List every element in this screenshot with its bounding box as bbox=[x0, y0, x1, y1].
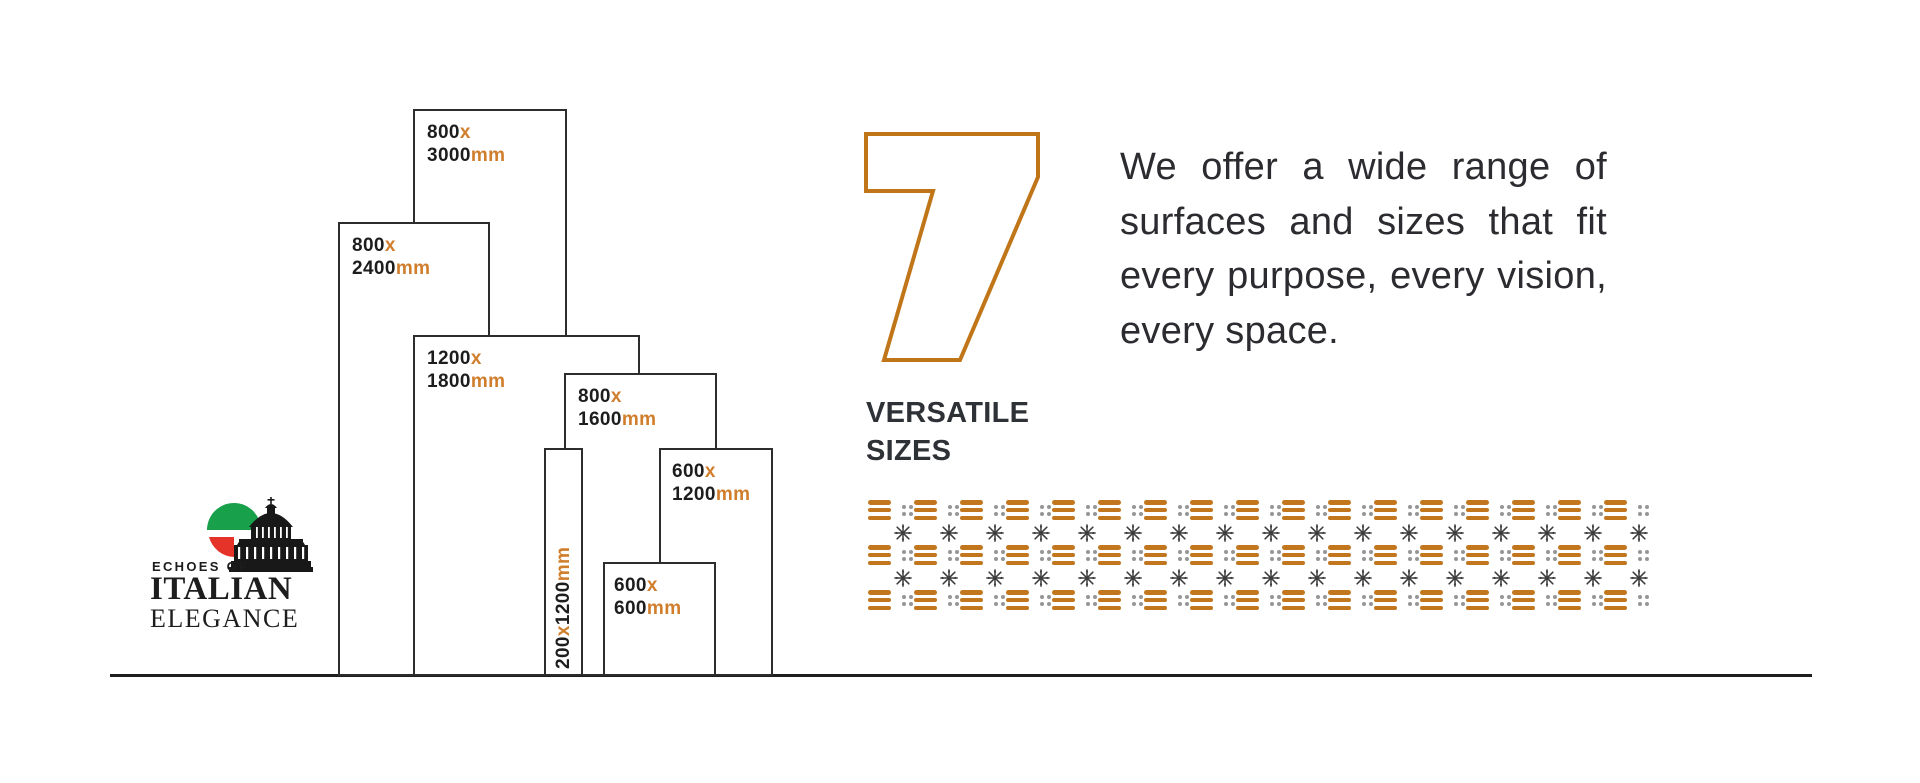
snowflake-motif-icon bbox=[1236, 520, 1282, 545]
quad-dot-motif-icon bbox=[902, 505, 913, 516]
triple-bar-motif-icon bbox=[1374, 500, 1397, 520]
pattern-cell bbox=[1604, 545, 1650, 565]
size-width: 200 bbox=[553, 636, 574, 669]
pattern-cell bbox=[1604, 590, 1650, 610]
quad-dot-motif-icon bbox=[902, 595, 913, 606]
triple-bar-motif-icon bbox=[1512, 545, 1535, 565]
triple-bar-motif-icon bbox=[1512, 590, 1535, 610]
pattern-band bbox=[868, 500, 1658, 610]
quad-dot-motif-icon bbox=[1592, 505, 1603, 516]
size-width: 600 bbox=[672, 461, 705, 482]
copy-line: surfaces and sizes that fit bbox=[1120, 195, 1607, 250]
pattern-row bbox=[868, 545, 1658, 565]
quad-dot-motif-icon bbox=[1316, 550, 1327, 561]
size-width: 800 bbox=[578, 386, 611, 407]
section-title: VERSATILE SIZES bbox=[866, 394, 1029, 470]
logo-italian: ITALIAN bbox=[150, 571, 292, 608]
snowflake-motif-icon bbox=[1466, 520, 1512, 545]
snowflake-motif-icon bbox=[1328, 565, 1374, 590]
section-title-line1: VERSATILE bbox=[866, 394, 1029, 432]
triple-bar-motif-icon bbox=[1604, 545, 1627, 565]
pattern-cell bbox=[1558, 545, 1604, 565]
snowflake-motif-icon bbox=[1420, 520, 1466, 545]
quad-dot-motif-icon bbox=[1316, 595, 1327, 606]
logo-elegance: ELEGANCE bbox=[150, 604, 299, 634]
snowflake-motif-icon bbox=[914, 565, 960, 590]
pattern-cell bbox=[960, 500, 1006, 520]
quad-dot-motif-icon bbox=[1408, 550, 1419, 561]
triple-bar-motif-icon bbox=[1190, 545, 1213, 565]
quad-dot-motif-icon bbox=[994, 595, 1005, 606]
triple-bar-motif-icon bbox=[1558, 545, 1581, 565]
tile-size-label: 800x 2400mm bbox=[340, 224, 488, 280]
pattern-cell bbox=[1558, 500, 1604, 520]
size-sep: x bbox=[385, 235, 396, 256]
tile-size-label: 600x 600mm bbox=[605, 564, 714, 620]
tile-size-label-vertical: 200x1200mm bbox=[553, 453, 575, 671]
pattern-cell bbox=[1190, 500, 1236, 520]
triple-bar-motif-icon bbox=[1466, 500, 1489, 520]
pattern-cell bbox=[1052, 500, 1098, 520]
quad-dot-motif-icon bbox=[1592, 550, 1603, 561]
size-sep: x bbox=[705, 461, 716, 482]
snowflake-motif-icon bbox=[1236, 565, 1282, 590]
quad-dot-motif-icon bbox=[1040, 550, 1051, 561]
tile-size-label: 800x 3000mm bbox=[415, 111, 565, 167]
size-height: 600 bbox=[614, 598, 647, 619]
size-height: 1200 bbox=[553, 581, 574, 625]
triple-bar-motif-icon bbox=[1374, 545, 1397, 565]
triple-bar-motif-icon bbox=[1374, 590, 1397, 610]
triple-bar-motif-icon bbox=[1098, 545, 1121, 565]
pattern-cell bbox=[960, 545, 1006, 565]
pattern-row bbox=[868, 590, 1658, 610]
quad-dot-motif-icon bbox=[948, 505, 959, 516]
triple-bar-motif-icon bbox=[960, 545, 983, 565]
pattern-cell bbox=[1604, 500, 1650, 520]
triple-bar-motif-icon bbox=[868, 500, 891, 520]
quad-dot-motif-icon bbox=[1454, 505, 1465, 516]
quad-dot-motif-icon bbox=[1362, 595, 1373, 606]
pattern-cell bbox=[1098, 545, 1144, 565]
triple-bar-motif-icon bbox=[1604, 500, 1627, 520]
quad-dot-motif-icon bbox=[1178, 505, 1189, 516]
size-unit: mm bbox=[553, 547, 574, 582]
triple-bar-motif-icon bbox=[1144, 545, 1167, 565]
quad-dot-motif-icon bbox=[1178, 550, 1189, 561]
triple-bar-motif-icon bbox=[1558, 590, 1581, 610]
pattern-cell bbox=[1282, 590, 1328, 610]
size-width: 600 bbox=[614, 575, 647, 596]
size-sep: x bbox=[611, 386, 622, 407]
snowflake-motif-icon bbox=[1052, 565, 1098, 590]
snowflake-motif-icon bbox=[1144, 520, 1190, 545]
snowflake-motif-icon bbox=[1512, 565, 1558, 590]
pattern-cell bbox=[1466, 590, 1512, 610]
size-sep: x bbox=[460, 122, 471, 143]
triple-bar-motif-icon bbox=[914, 545, 937, 565]
pattern-cell bbox=[1098, 500, 1144, 520]
pattern-cell bbox=[1144, 500, 1190, 520]
pattern-cell bbox=[1052, 545, 1098, 565]
quad-dot-motif-icon bbox=[1040, 505, 1051, 516]
quad-dot-motif-icon bbox=[1546, 595, 1557, 606]
size-unit: mm bbox=[471, 371, 506, 392]
size-height: 1800 bbox=[427, 371, 471, 392]
quad-dot-motif-icon bbox=[1224, 550, 1235, 561]
triple-bar-motif-icon bbox=[1052, 590, 1075, 610]
triple-bar-motif-icon bbox=[1236, 590, 1259, 610]
quad-dot-motif-icon bbox=[1592, 595, 1603, 606]
copy-line: every purpose, every vision, bbox=[1120, 249, 1607, 304]
quad-dot-motif-icon bbox=[1086, 505, 1097, 516]
tile-size-label: 800x 1600mm bbox=[566, 375, 715, 431]
pattern-cell bbox=[914, 590, 960, 610]
pattern-cell bbox=[1558, 590, 1604, 610]
triple-bar-motif-icon bbox=[1006, 500, 1029, 520]
snowflake-motif-icon bbox=[1420, 565, 1466, 590]
quad-dot-motif-icon bbox=[1270, 505, 1281, 516]
pattern-cell bbox=[1006, 545, 1052, 565]
triple-bar-motif-icon bbox=[1190, 500, 1213, 520]
brand-logo: ECHOES OF ITALIAN ELEGANCE bbox=[148, 497, 318, 637]
size-height: 1600 bbox=[578, 409, 622, 430]
snowflake-motif-icon bbox=[1558, 520, 1604, 545]
pattern-cell bbox=[1328, 500, 1374, 520]
triple-bar-motif-icon bbox=[1420, 500, 1443, 520]
quad-dot-motif-icon bbox=[1178, 595, 1189, 606]
pattern-cell bbox=[868, 590, 914, 610]
quad-dot-motif-icon bbox=[1638, 550, 1649, 561]
triple-bar-motif-icon bbox=[1144, 590, 1167, 610]
size-sep: x bbox=[647, 575, 658, 596]
copy-line: We offer a wide range of bbox=[1120, 140, 1607, 195]
quad-dot-motif-icon bbox=[1224, 505, 1235, 516]
quad-dot-motif-icon bbox=[1040, 595, 1051, 606]
pattern-cell bbox=[1420, 590, 1466, 610]
triple-bar-motif-icon bbox=[1236, 545, 1259, 565]
snowflake-motif-icon bbox=[1558, 565, 1604, 590]
pattern-cell bbox=[1420, 500, 1466, 520]
pattern-cell bbox=[1144, 545, 1190, 565]
quad-dot-motif-icon bbox=[1638, 595, 1649, 606]
size-width: 800 bbox=[352, 235, 385, 256]
size-unit: mm bbox=[647, 598, 682, 619]
pattern-cell bbox=[1282, 545, 1328, 565]
pattern-cell bbox=[1006, 590, 1052, 610]
snowflake-motif-icon bbox=[1512, 520, 1558, 545]
quad-dot-motif-icon bbox=[948, 595, 959, 606]
snowflake-motif-icon bbox=[960, 565, 1006, 590]
quad-dot-motif-icon bbox=[1224, 595, 1235, 606]
pattern-cell bbox=[1512, 545, 1558, 565]
snowflake-motif-icon bbox=[1098, 520, 1144, 545]
pattern-cell bbox=[1236, 500, 1282, 520]
snowflake-motif-icon bbox=[868, 520, 914, 545]
snowflake-motif-icon bbox=[1466, 565, 1512, 590]
quad-dot-motif-icon bbox=[1270, 550, 1281, 561]
snowflake-motif-icon bbox=[1282, 520, 1328, 545]
quad-dot-motif-icon bbox=[1546, 505, 1557, 516]
triple-bar-motif-icon bbox=[1190, 590, 1213, 610]
pattern-cell bbox=[1052, 590, 1098, 610]
pattern-cell bbox=[868, 500, 914, 520]
size-unit: mm bbox=[622, 409, 657, 430]
pattern-row bbox=[868, 520, 1658, 545]
triple-bar-motif-icon bbox=[1420, 590, 1443, 610]
pattern-row bbox=[868, 500, 1658, 520]
pattern-cell bbox=[1512, 500, 1558, 520]
triple-bar-motif-icon bbox=[1466, 545, 1489, 565]
tile-bar-600x600: 600x 600mm bbox=[603, 562, 716, 676]
triple-bar-motif-icon bbox=[914, 500, 937, 520]
triple-bar-motif-icon bbox=[1604, 590, 1627, 610]
quad-dot-motif-icon bbox=[1454, 595, 1465, 606]
quad-dot-motif-icon bbox=[1270, 595, 1281, 606]
quad-dot-motif-icon bbox=[1546, 550, 1557, 561]
pattern-cell bbox=[1236, 545, 1282, 565]
quad-dot-motif-icon bbox=[1408, 505, 1419, 516]
tile-bar-200x1200: 200x1200mm bbox=[544, 448, 583, 676]
triple-bar-motif-icon bbox=[1144, 500, 1167, 520]
pattern-cell bbox=[1282, 500, 1328, 520]
triple-bar-motif-icon bbox=[1328, 590, 1351, 610]
triple-bar-motif-icon bbox=[960, 500, 983, 520]
size-unit: mm bbox=[716, 484, 751, 505]
triple-bar-motif-icon bbox=[1006, 545, 1029, 565]
quad-dot-motif-icon bbox=[1408, 595, 1419, 606]
pattern-cell bbox=[1374, 590, 1420, 610]
size-sep: x bbox=[553, 625, 574, 636]
tile-size-label: 600x 1200mm bbox=[661, 450, 771, 506]
triple-bar-motif-icon bbox=[1236, 500, 1259, 520]
quad-dot-motif-icon bbox=[1086, 595, 1097, 606]
triple-bar-motif-icon bbox=[1282, 590, 1305, 610]
triple-bar-motif-icon bbox=[1558, 500, 1581, 520]
triple-bar-motif-icon bbox=[1420, 545, 1443, 565]
pattern-cell bbox=[914, 545, 960, 565]
size-unit: mm bbox=[471, 145, 506, 166]
size-width: 800 bbox=[427, 122, 460, 143]
pattern-cell bbox=[1512, 590, 1558, 610]
pattern-cell bbox=[1328, 590, 1374, 610]
triple-bar-motif-icon bbox=[1052, 545, 1075, 565]
quad-dot-motif-icon bbox=[1132, 505, 1143, 516]
size-height: 3000 bbox=[427, 145, 471, 166]
snowflake-motif-icon bbox=[1374, 565, 1420, 590]
quad-dot-motif-icon bbox=[1638, 505, 1649, 516]
quad-dot-motif-icon bbox=[1132, 595, 1143, 606]
triple-bar-motif-icon bbox=[960, 590, 983, 610]
pattern-cell bbox=[960, 590, 1006, 610]
triple-bar-motif-icon bbox=[1098, 500, 1121, 520]
size-unit: mm bbox=[396, 258, 431, 279]
quad-dot-motif-icon bbox=[1500, 505, 1511, 516]
size-height: 2400 bbox=[352, 258, 396, 279]
quad-dot-motif-icon bbox=[1316, 505, 1327, 516]
snowflake-motif-icon bbox=[1328, 520, 1374, 545]
quad-dot-motif-icon bbox=[948, 550, 959, 561]
snowflake-motif-icon bbox=[1144, 565, 1190, 590]
size-width: 1200 bbox=[427, 348, 471, 369]
pattern-cell bbox=[1466, 545, 1512, 565]
triple-bar-motif-icon bbox=[1466, 590, 1489, 610]
pattern-cell bbox=[868, 545, 914, 565]
pattern-cell bbox=[1144, 590, 1190, 610]
snowflake-motif-icon bbox=[1190, 520, 1236, 545]
quad-dot-motif-icon bbox=[1500, 550, 1511, 561]
quad-dot-motif-icon bbox=[1362, 550, 1373, 561]
quad-dot-motif-icon bbox=[994, 550, 1005, 561]
quad-dot-motif-icon bbox=[1132, 550, 1143, 561]
snowflake-motif-icon bbox=[1604, 565, 1650, 590]
snowflake-motif-icon bbox=[1604, 520, 1650, 545]
pattern-cell bbox=[1006, 500, 1052, 520]
triple-bar-motif-icon bbox=[914, 590, 937, 610]
triple-bar-motif-icon bbox=[1328, 500, 1351, 520]
pattern-cell bbox=[1098, 590, 1144, 610]
snowflake-motif-icon bbox=[868, 565, 914, 590]
quad-dot-motif-icon bbox=[1362, 505, 1373, 516]
snowflake-motif-icon bbox=[1374, 520, 1420, 545]
triple-bar-motif-icon bbox=[1098, 590, 1121, 610]
snowflake-motif-icon bbox=[914, 520, 960, 545]
quad-dot-motif-icon bbox=[902, 550, 913, 561]
snowflake-motif-icon bbox=[1006, 565, 1052, 590]
quad-dot-motif-icon bbox=[1086, 550, 1097, 561]
triple-bar-motif-icon bbox=[1512, 500, 1535, 520]
pattern-cell bbox=[1374, 500, 1420, 520]
quad-dot-motif-icon bbox=[1454, 550, 1465, 561]
triple-bar-motif-icon bbox=[1328, 545, 1351, 565]
snowflake-motif-icon bbox=[1052, 520, 1098, 545]
pattern-cell bbox=[1236, 590, 1282, 610]
triple-bar-motif-icon bbox=[1282, 545, 1305, 565]
pattern-cell bbox=[1420, 545, 1466, 565]
pattern-cell bbox=[1190, 545, 1236, 565]
triple-bar-motif-icon bbox=[1282, 500, 1305, 520]
snowflake-motif-icon bbox=[1006, 520, 1052, 545]
triple-bar-motif-icon bbox=[868, 545, 891, 565]
triple-bar-motif-icon bbox=[1006, 590, 1029, 610]
pattern-cell bbox=[1328, 545, 1374, 565]
quad-dot-motif-icon bbox=[994, 505, 1005, 516]
triple-bar-motif-icon bbox=[868, 590, 891, 610]
triple-bar-motif-icon bbox=[1052, 500, 1075, 520]
copy-line: every space. bbox=[1120, 304, 1607, 359]
pattern-cell bbox=[1190, 590, 1236, 610]
snowflake-motif-icon bbox=[1190, 565, 1236, 590]
snowflake-motif-icon bbox=[1282, 565, 1328, 590]
pattern-row bbox=[868, 565, 1658, 590]
pattern-cell bbox=[1466, 500, 1512, 520]
section-title-line2: SIZES bbox=[866, 432, 1029, 470]
big-number-seven bbox=[863, 131, 1042, 363]
infographic-canvas: 800x 3000mm 800x 2400mm 1200x 1800mm 800… bbox=[0, 0, 1920, 783]
snowflake-motif-icon bbox=[1098, 565, 1144, 590]
snowflake-motif-icon bbox=[960, 520, 1006, 545]
quad-dot-motif-icon bbox=[1500, 595, 1511, 606]
pattern-cell bbox=[914, 500, 960, 520]
size-sep: x bbox=[471, 348, 482, 369]
pattern-cell bbox=[1374, 545, 1420, 565]
size-height: 1200 bbox=[672, 484, 716, 505]
marketing-copy: We offer a wide range of surfaces and si… bbox=[1120, 140, 1607, 358]
